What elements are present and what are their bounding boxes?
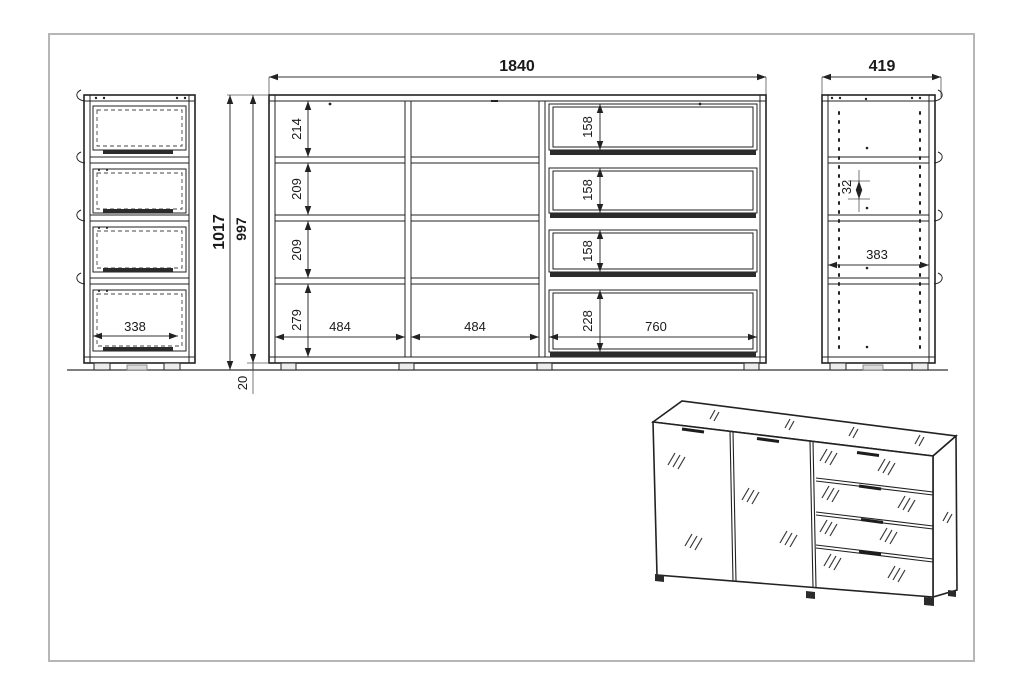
- dim-left-inner-width: 338: [124, 319, 146, 334]
- dim-bay-right: 760: [645, 319, 667, 334]
- dim-total-height: 1017: [211, 214, 228, 250]
- dim-drawer-4: 228: [580, 310, 595, 332]
- dim-plinth-height: 20: [235, 376, 250, 390]
- dim-hole-pitch: 32: [839, 180, 854, 194]
- left-side-view: 338: [77, 90, 195, 370]
- dim-drawer-2: 158: [580, 179, 595, 201]
- dim-bay-center: 484: [464, 319, 486, 334]
- dim-right-inner-width: 383: [866, 247, 888, 262]
- isometric-view: [653, 401, 957, 606]
- dim-row-4: 279: [289, 309, 304, 331]
- dim-row-2: 209: [289, 178, 304, 200]
- sideboard-technical-drawing: 338 1017 997 20 1840: [0, 0, 1024, 680]
- dim-drawer-3: 158: [580, 240, 595, 262]
- technical-drawing-page: 338 1017 997 20 1840: [0, 0, 1024, 680]
- dim-total-depth: 419: [869, 58, 896, 75]
- dim-row-1: 214: [289, 118, 304, 140]
- front-view: 1840: [269, 58, 766, 370]
- dim-body-height: 997: [233, 217, 249, 241]
- dim-bay-left: 484: [329, 319, 351, 334]
- dim-drawer-1: 158: [580, 116, 595, 138]
- dim-total-width: 1840: [499, 58, 535, 75]
- dim-row-3: 209: [289, 239, 304, 261]
- right-side-view: 419: [822, 58, 942, 370]
